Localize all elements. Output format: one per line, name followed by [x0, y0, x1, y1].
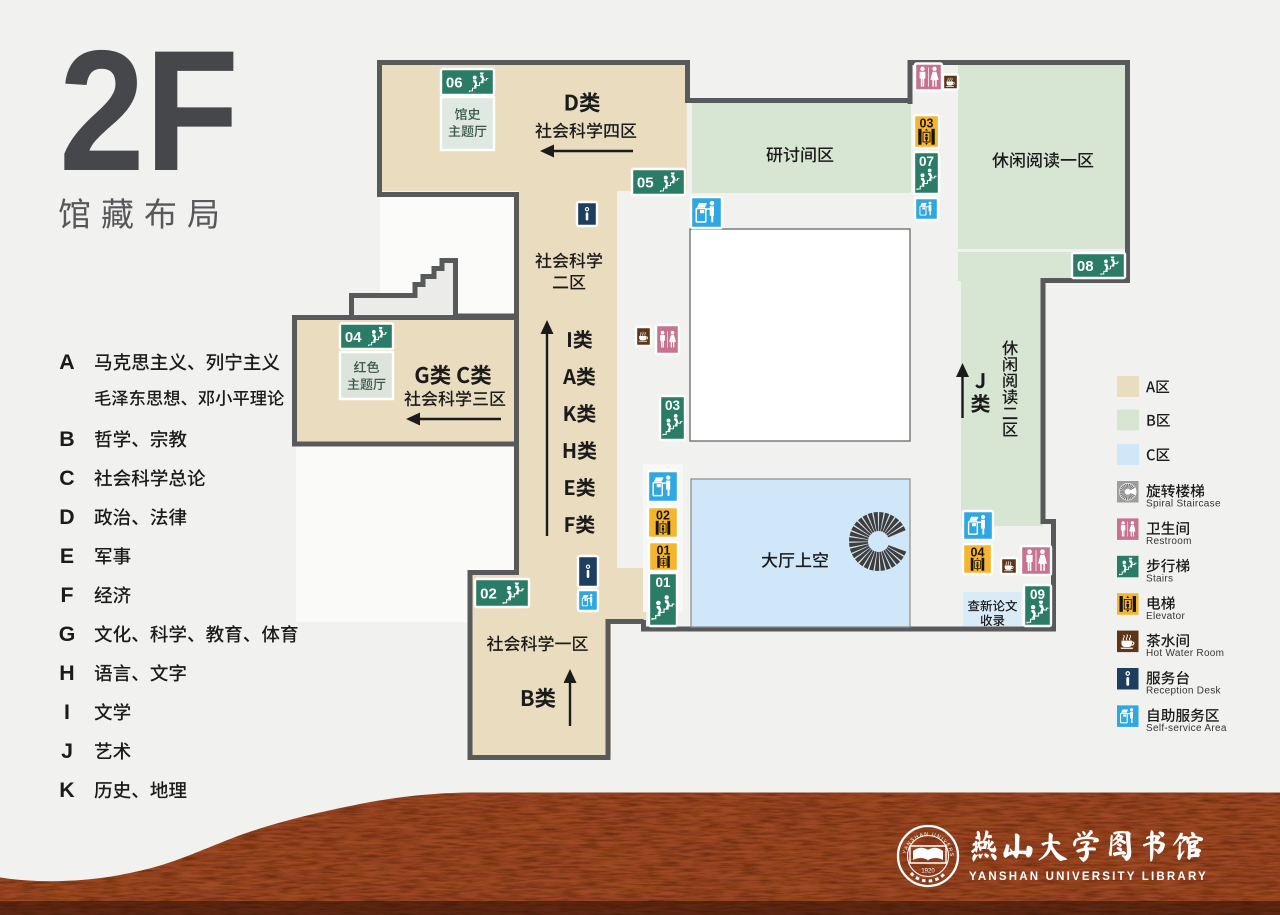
svg-text:Stairs: Stairs [1146, 573, 1173, 584]
svg-text:J: J [61, 739, 73, 763]
svg-text:02: 02 [480, 586, 497, 603]
svg-text:Restroom: Restroom [1146, 536, 1192, 547]
svg-text:K: K [59, 778, 75, 802]
svg-text:03: 03 [920, 117, 934, 131]
svg-text:09: 09 [1030, 587, 1045, 602]
svg-text:Reception Desk: Reception Desk [1146, 686, 1221, 697]
svg-text:B: B [59, 427, 74, 451]
svg-text:D: D [59, 505, 74, 529]
svg-text:1920: 1920 [921, 869, 935, 875]
svg-text:H: H [59, 661, 74, 685]
svg-text:01: 01 [655, 575, 671, 590]
svg-text:05: 05 [637, 175, 654, 192]
svg-text:04: 04 [345, 329, 362, 346]
svg-text:E: E [60, 544, 74, 568]
svg-text:03: 03 [665, 398, 681, 413]
svg-text:YANSHAN UNIVERSITY LIBRARY: YANSHAN UNIVERSITY LIBRARY [969, 871, 1208, 883]
svg-text:2F: 2F [59, 15, 239, 207]
svg-text:08: 08 [1077, 258, 1094, 275]
svg-text:01: 01 [657, 544, 671, 558]
svg-text:Self-service Area: Self-service Area [1146, 723, 1227, 734]
svg-text:04: 04 [971, 546, 985, 560]
svg-text:Spiral Staircase: Spiral Staircase [1146, 499, 1221, 510]
svg-text:07: 07 [919, 154, 934, 169]
svg-text:02: 02 [656, 509, 670, 523]
svg-text:G: G [59, 622, 76, 646]
svg-text:06: 06 [446, 75, 463, 92]
svg-text:A: A [59, 350, 74, 374]
svg-text:Elevator: Elevator [1146, 611, 1185, 622]
svg-text:C: C [59, 466, 74, 490]
svg-text:Hot Water Room: Hot Water Room [1146, 648, 1224, 659]
svg-text:F: F [60, 583, 73, 607]
svg-text:I: I [64, 700, 70, 724]
